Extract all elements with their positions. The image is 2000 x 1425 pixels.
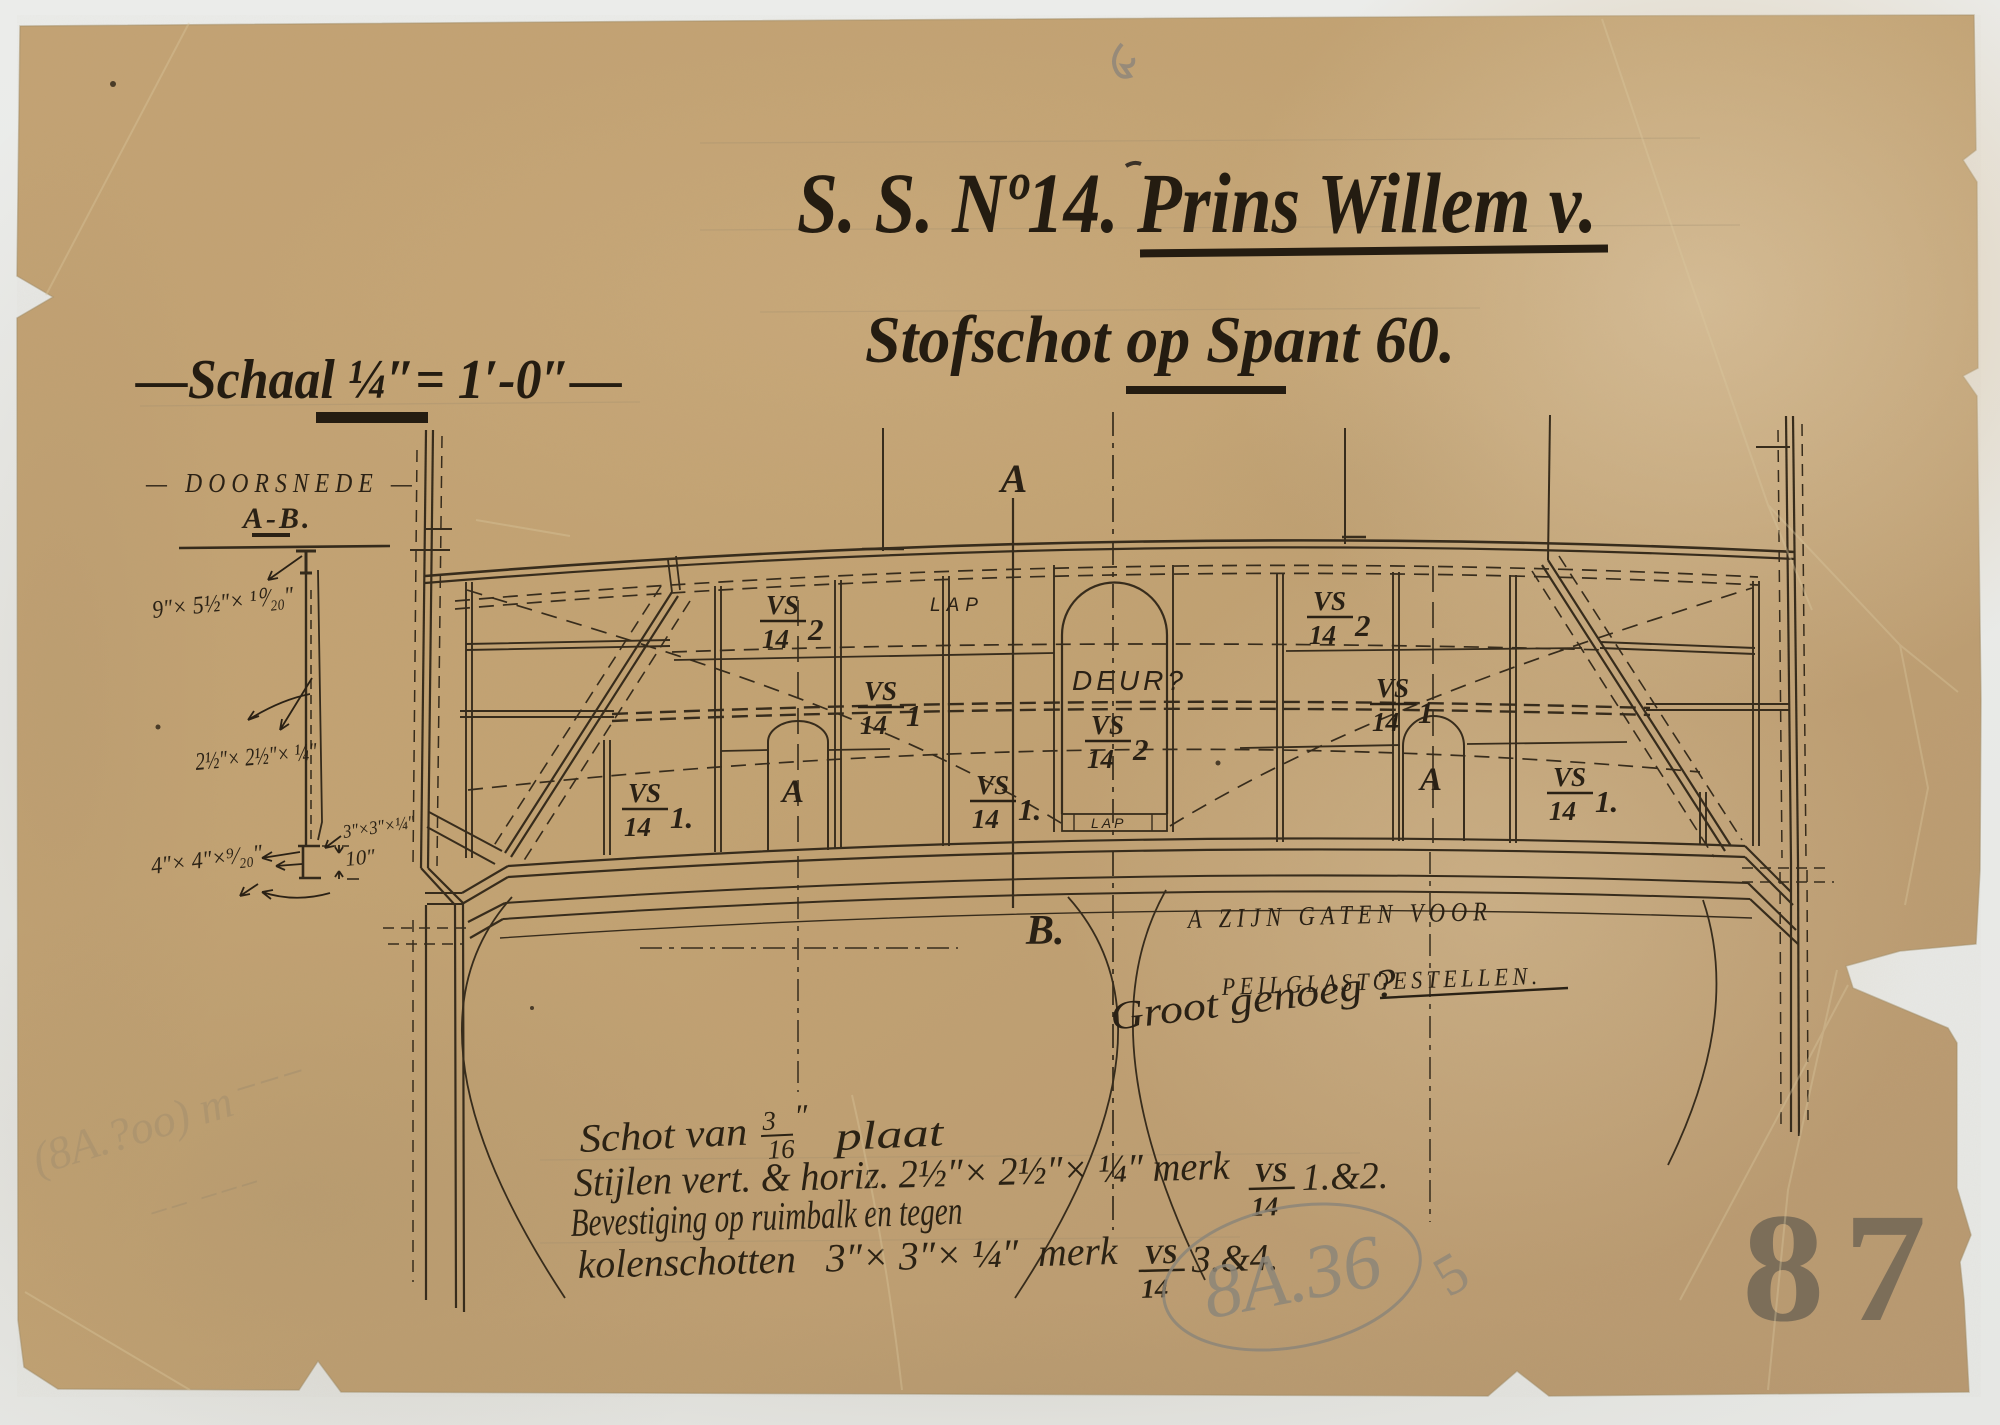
svg-text:14: 14 [860, 710, 887, 740]
svg-text:3: 3 [761, 1105, 777, 1136]
svg-text:14: 14 [624, 812, 651, 842]
svg-text:—Schaal ¼″= 1′-0″—: —Schaal ¼″= 1′-0″— [135, 349, 622, 411]
svg-text:1.: 1. [1018, 792, 1041, 827]
svg-text:2: 2 [1132, 732, 1149, 767]
svg-text:14: 14 [762, 624, 789, 654]
svg-text:Schot van: Schot van [578, 1109, 748, 1161]
svg-text:14: 14 [1309, 620, 1336, 650]
svg-text:A: A [1418, 762, 1442, 798]
svg-text:VS: VS [766, 590, 799, 620]
svg-text:1: 1 [1418, 695, 1434, 730]
svg-text:1.: 1. [670, 800, 693, 835]
svg-text:LAP: LAP [1091, 815, 1126, 831]
svg-text:LAP: LAP [930, 595, 984, 616]
svg-text:S. S. Nº14. Prins Willem v.: S. S. Nº14. Prins Willem v. [797, 155, 1597, 251]
svg-text:A-B.: A-B. [241, 502, 313, 535]
svg-text:VS: VS [1313, 586, 1346, 616]
svg-text:14: 14 [972, 804, 999, 834]
svg-text:VS: VS [1553, 762, 1586, 792]
svg-text:VS: VS [1376, 673, 1409, 703]
svg-text:— DOORSNEDE —: — DOORSNEDE — [145, 468, 418, 498]
svg-text:VS: VS [1091, 710, 1124, 740]
svg-text:Stofschot op Spant 60.: Stofschot op Spant 60. [865, 303, 1455, 377]
svg-text:2: 2 [807, 612, 824, 647]
svg-text:VS: VS [628, 778, 661, 808]
svg-text:2: 2 [1354, 608, 1371, 643]
svg-text:A: A [780, 774, 804, 810]
svg-text:VS: VS [1254, 1157, 1288, 1188]
svg-text:1.&2.: 1.&2. [1301, 1155, 1389, 1199]
svg-text:14: 14 [1549, 796, 1576, 826]
svg-text:VS: VS [976, 770, 1009, 800]
svg-text:1.: 1. [1595, 784, 1618, 819]
svg-text:A: A [998, 456, 1028, 501]
svg-text:14: 14 [1251, 1191, 1279, 1222]
svg-text:B.: B. [1025, 908, 1065, 954]
svg-text:10″: 10″ [344, 844, 376, 871]
svg-text:″: ″ [793, 1097, 809, 1134]
svg-text:1: 1 [906, 698, 922, 733]
svg-text:14: 14 [1372, 707, 1399, 737]
svg-text:DEUR?: DEUR? [1072, 665, 1187, 696]
svg-text:87: 87 [1742, 1181, 1946, 1354]
svg-text:VS: VS [864, 676, 897, 706]
svg-text:14: 14 [1087, 744, 1114, 774]
